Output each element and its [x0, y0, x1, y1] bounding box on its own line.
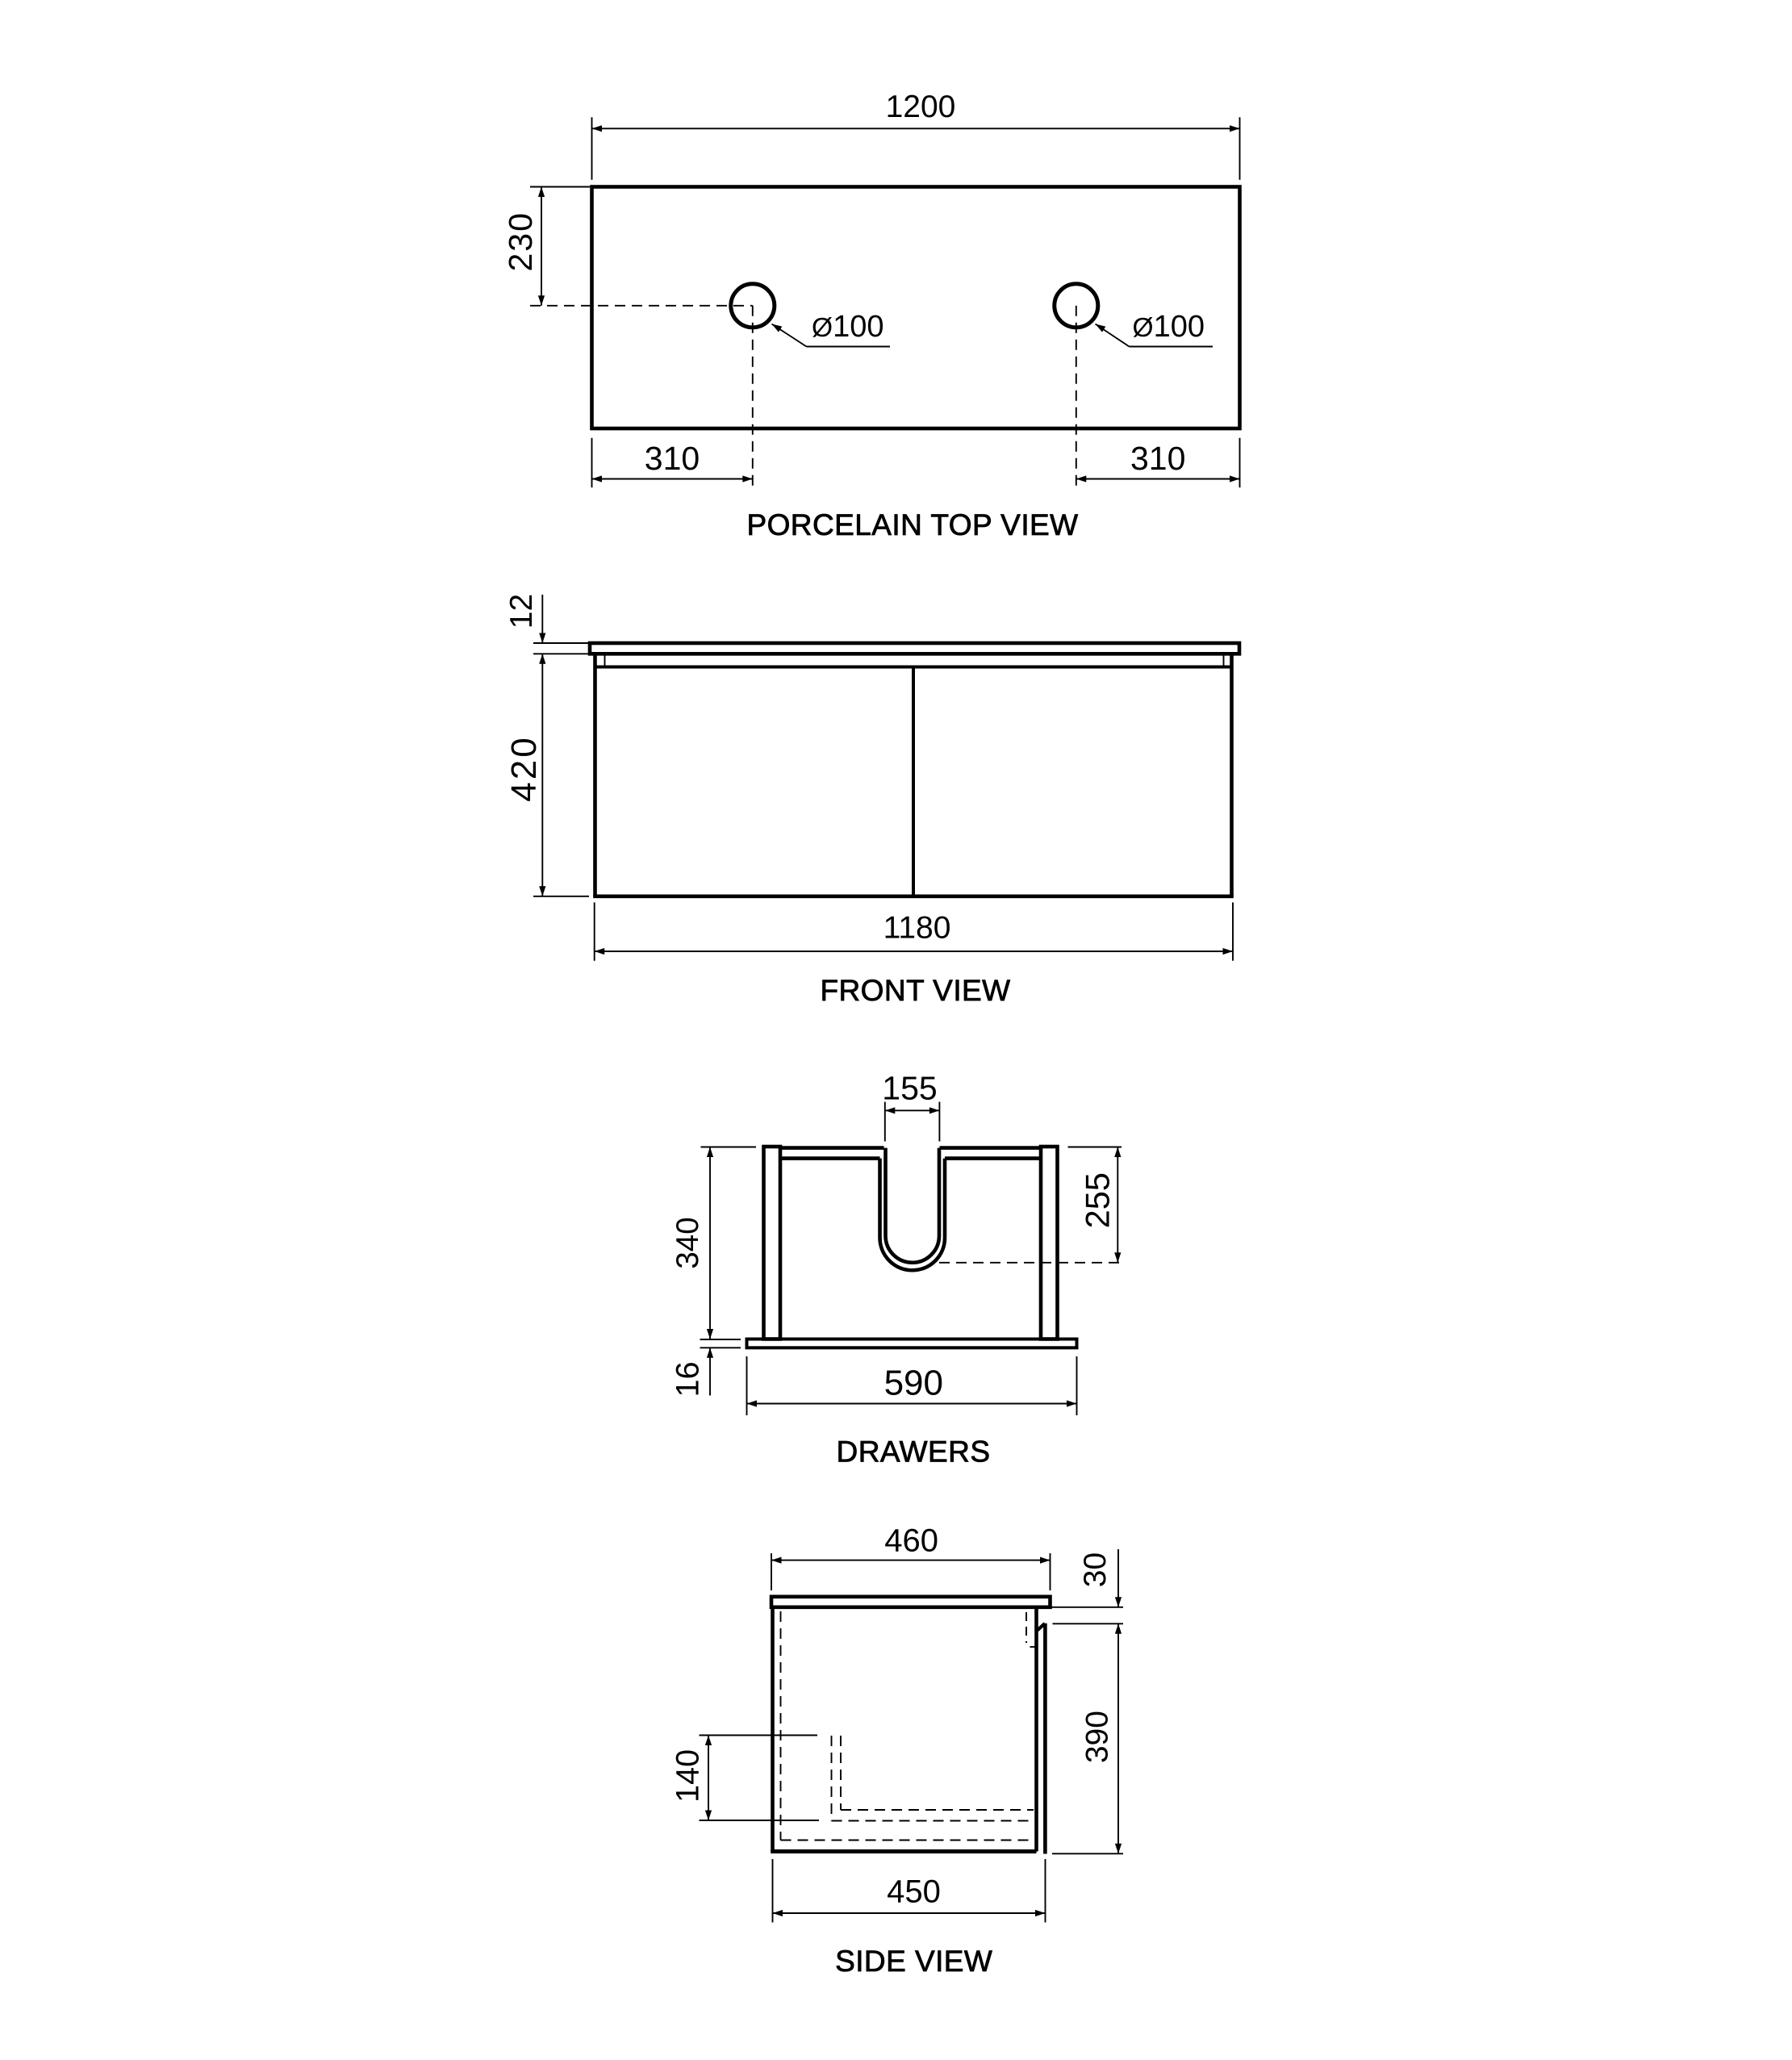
svg-text:450: 450 — [887, 1874, 941, 1910]
svg-text:DRAWERS: DRAWERS — [837, 1435, 991, 1469]
svg-text:30: 30 — [1078, 1552, 1113, 1587]
svg-text:PORCELAIN TOP VIEW: PORCELAIN TOP VIEW — [746, 508, 1078, 541]
svg-text:340: 340 — [670, 1217, 705, 1268]
svg-text:Ø100: Ø100 — [812, 310, 883, 344]
svg-text:16: 16 — [670, 1361, 706, 1397]
svg-text:390: 390 — [1080, 1711, 1114, 1763]
svg-text:12: 12 — [504, 594, 539, 629]
svg-text:Ø100: Ø100 — [1133, 310, 1205, 344]
svg-text:140: 140 — [670, 1749, 706, 1803]
svg-text:310: 310 — [1130, 440, 1185, 477]
svg-text:590: 590 — [884, 1363, 943, 1402]
svg-text:FRONT VIEW: FRONT VIEW — [820, 974, 1010, 1007]
svg-text:SIDE VIEW: SIDE VIEW — [835, 1945, 992, 1978]
svg-text:460: 460 — [884, 1523, 938, 1558]
svg-text:155: 155 — [882, 1069, 937, 1106]
svg-text:310: 310 — [645, 440, 700, 477]
svg-text:1180: 1180 — [883, 910, 951, 945]
svg-text:420: 420 — [504, 735, 544, 801]
svg-text:230: 230 — [502, 211, 539, 271]
svg-text:255: 255 — [1078, 1172, 1116, 1228]
svg-text:1200: 1200 — [886, 90, 956, 124]
